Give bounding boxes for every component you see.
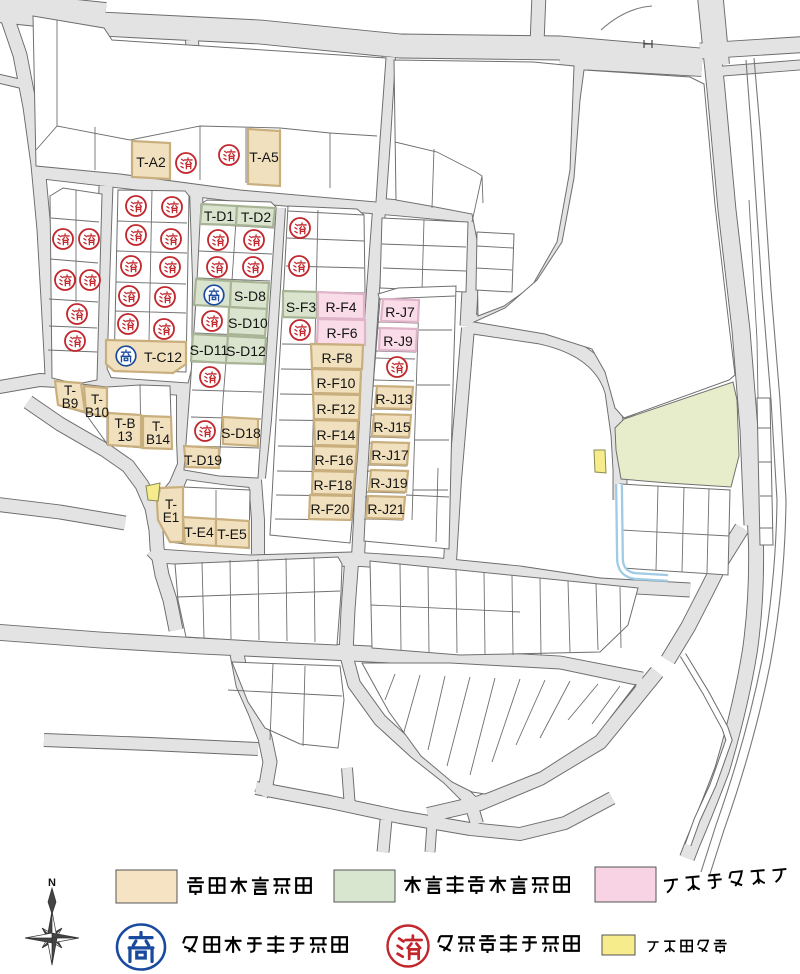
svg-text:S-D8: S-D8 [234,288,266,304]
svg-text:N: N [48,877,56,889]
svg-text:B14: B14 [146,432,171,447]
svg-text:R-F20: R-F20 [311,501,350,517]
svg-text:R-F12: R-F12 [317,401,356,417]
svg-text:T-C12: T-C12 [144,349,182,365]
svg-text:R-J13: R-J13 [375,391,413,407]
svg-text:R-J19: R-J19 [370,475,408,491]
svg-text:R-F8: R-F8 [321,350,352,366]
svg-text:R-J9: R-J9 [383,333,413,349]
svg-text:R-F6: R-F6 [326,325,357,341]
svg-text:R-F4: R-F4 [325,299,356,315]
svg-text:13: 13 [117,429,132,444]
svg-text:B9: B9 [62,396,79,411]
svg-text:S-D10: S-D10 [228,315,268,331]
svg-text:R-F16: R-F16 [315,452,354,468]
svg-text:T-A2: T-A2 [136,154,166,170]
svg-text:T-E5: T-E5 [217,526,247,542]
svg-text:E1: E1 [163,510,180,525]
svg-text:S-D11: S-D11 [190,342,229,358]
svg-text:B10: B10 [85,405,109,420]
svg-text:R-J15: R-J15 [373,419,411,435]
svg-text:S-D12: S-D12 [226,343,266,359]
svg-text:R-F10: R-F10 [317,375,356,391]
svg-text:T-D19: T-D19 [184,452,222,468]
svg-text:R-J17: R-J17 [371,447,409,463]
svg-text:T-A5: T-A5 [249,149,279,165]
svg-text:T-D1: T-D1 [204,208,235,224]
svg-text:R-J7: R-J7 [385,304,415,320]
svg-text:T-E4: T-E4 [184,524,214,540]
svg-text:R-F18: R-F18 [314,477,353,493]
svg-text:R-J21: R-J21 [367,501,405,517]
svg-text:R-F14: R-F14 [317,427,356,443]
svg-text:S-F3: S-F3 [286,299,317,315]
svg-text:S-D18: S-D18 [221,425,261,441]
svg-text:T-D2: T-D2 [241,209,272,225]
